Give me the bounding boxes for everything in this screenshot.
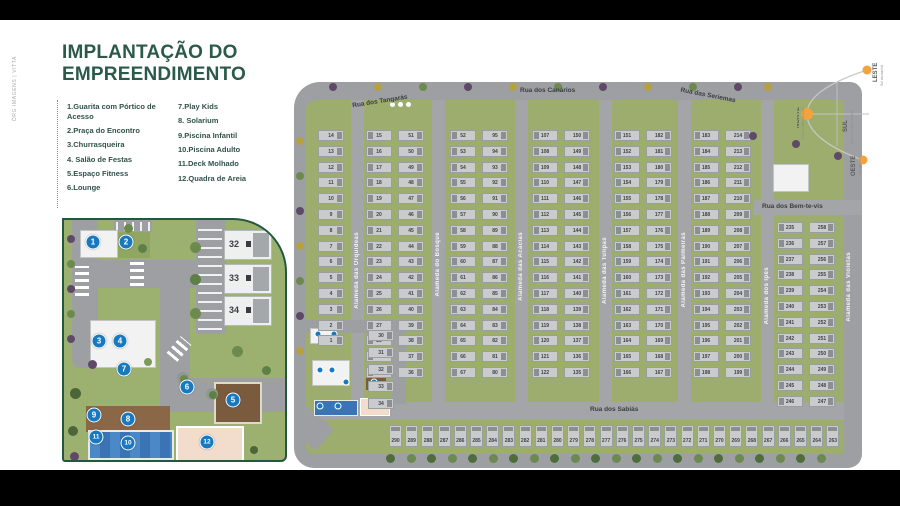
lot-number: 93 (483, 163, 507, 172)
lot-number: 200 (726, 352, 750, 361)
lot-number: 204 (726, 289, 750, 298)
lot-number: 270 (714, 426, 725, 446)
lot-number: 9 (319, 210, 343, 219)
lot-house: 181 (646, 146, 672, 157)
lot-number: 66 (451, 352, 475, 361)
lot-number: 13 (319, 147, 343, 156)
amenity-marker-12: 12 (200, 435, 215, 450)
lot-number: 12 (319, 163, 343, 172)
lot-number: 24 (367, 273, 391, 282)
lot-number: 80 (483, 368, 507, 377)
lot-house: 1 (318, 335, 344, 346)
lot-number: 252 (810, 318, 834, 327)
lot-house: 271 (697, 425, 710, 447)
lot-house: 197 (693, 351, 719, 362)
lot-house: 92 (482, 177, 508, 188)
house-roof (253, 299, 269, 323)
lot-house: 282 (519, 425, 532, 447)
lot-number: 113 (533, 226, 557, 235)
legend-item: 10.Piscina Adulto (178, 145, 278, 155)
lot-number: 60 (451, 257, 475, 266)
lot-number: 64 (451, 321, 475, 330)
lot-number: 25 (367, 289, 391, 298)
slide: ÓRG IMAGENS | VITTA IMPLANTAÇÃO DO EMPRE… (0, 0, 900, 506)
bush-icon (296, 207, 304, 215)
lot-number: 38 (399, 336, 423, 345)
sun-path-compass: LESTE Sol da manhã NORTE Maior incidênci… (797, 52, 897, 178)
bush-icon (296, 347, 304, 355)
lot-house: 3 (318, 304, 344, 315)
lot-house: 209 (725, 209, 751, 220)
lot-house: 12 (318, 162, 344, 173)
tree-icon (67, 335, 75, 343)
lot-number: 139 (565, 305, 589, 314)
lot-house: 155 (614, 193, 640, 204)
lot-house: 279 (567, 425, 580, 447)
lot-house: 146 (564, 193, 590, 204)
lot-number: 67 (451, 368, 475, 377)
legend-item: 2.Praça do Encontro (67, 126, 167, 136)
lot-number: 2 (319, 321, 343, 330)
lot-house: 122 (532, 367, 558, 378)
lot-house: 206 (725, 256, 751, 267)
lot-number: 191 (694, 257, 718, 266)
lot-number: 31 (369, 348, 393, 357)
lot-house: 172 (646, 288, 672, 299)
lot-number: 162 (615, 305, 639, 314)
detail-house-number: 34 (229, 297, 239, 325)
tree-icon (632, 454, 641, 463)
lot-number: 151 (615, 131, 639, 140)
lot-house: 254 (809, 285, 835, 296)
bush-icon (509, 83, 517, 91)
lot-house: 138 (564, 320, 590, 331)
legend-divider (57, 100, 58, 208)
lot-number: 237 (778, 255, 802, 264)
lot-number: 239 (778, 286, 802, 295)
lot-house: 167 (646, 367, 672, 378)
lot-number: 36 (399, 368, 423, 377)
legend-item: 4. Salão de Festas (67, 155, 167, 165)
lot-house: 115 (532, 256, 558, 267)
tree-icon (468, 454, 477, 463)
street-label-alameda: Alameda das Palmeiras (681, 232, 687, 307)
lot-house: 266 (778, 425, 791, 447)
lot-house: 32 (368, 364, 394, 375)
lot-number: 159 (615, 257, 639, 266)
lot-number: 287 (439, 426, 450, 446)
lot-number: 280 (552, 426, 563, 446)
lot-number: 141 (565, 273, 589, 282)
lot-house: 195 (693, 320, 719, 331)
lot-number: 282 (520, 426, 531, 446)
lot-house: 290 (389, 425, 402, 447)
lot-number: 148 (565, 163, 589, 172)
amenity-marker-4: 4 (113, 334, 128, 349)
lot-house: 191 (693, 256, 719, 267)
lot-house: 16 (366, 146, 392, 157)
lot-house: 63 (450, 304, 476, 315)
bush-icon (329, 83, 337, 91)
lot-house: 287 (438, 425, 451, 447)
lot-number: 267 (763, 426, 774, 446)
lot-number: 120 (533, 336, 557, 345)
lot-house: 90 (482, 209, 508, 220)
lot-house: 108 (532, 146, 558, 157)
lot-number: 244 (778, 365, 802, 374)
lot-number: 180 (647, 163, 671, 172)
lot-house: 14 (318, 130, 344, 141)
lot-number: 5 (319, 273, 343, 282)
lot-number: 149 (565, 147, 589, 156)
lot-number: 286 (455, 426, 466, 446)
lot-house: 94 (482, 146, 508, 157)
tree-icon (232, 346, 243, 357)
lot-number: 284 (487, 426, 498, 446)
lot-number: 214 (726, 131, 750, 140)
lot-house: 44 (398, 241, 424, 252)
page-title-line2: EMPREENDIMENTO (62, 64, 246, 86)
lot-number: 143 (565, 242, 589, 251)
bush-icon (464, 83, 472, 91)
lot-number: 44 (399, 242, 423, 251)
tree-icon (694, 454, 703, 463)
lot-number: 33 (369, 382, 393, 391)
lot-house: 250 (809, 348, 835, 359)
house-roof-vent (246, 241, 251, 247)
lot-house: 137 (564, 335, 590, 346)
house-roof (253, 267, 269, 291)
lot-number: 240 (778, 302, 802, 311)
lot-number: 114 (533, 242, 557, 251)
lot-house: 252 (809, 317, 835, 328)
lot-house: 164 (614, 335, 640, 346)
lot-number: 256 (810, 255, 834, 264)
lot-house: 241 (777, 317, 803, 328)
lot-house: 240 (777, 301, 803, 312)
lot-house: 119 (532, 320, 558, 331)
lot-house: 193 (693, 288, 719, 299)
lot-number: 250 (810, 349, 834, 358)
lot-number: 265 (795, 426, 806, 446)
page-title: IMPLANTAÇÃO DO EMPREENDIMENTO (62, 42, 246, 86)
bush-icon (296, 312, 304, 320)
lot-number: 165 (615, 352, 639, 361)
detail-house-number: 32 (229, 231, 239, 259)
lot-house: 175 (646, 241, 672, 252)
lot-number: 146 (565, 194, 589, 203)
lot-house: 243 (777, 348, 803, 359)
lot-house: 18 (366, 177, 392, 188)
lot-number: 32 (369, 365, 393, 374)
lot-number: 18 (367, 178, 391, 187)
lot-number: 266 (779, 426, 790, 446)
lot-house: 30 (368, 330, 394, 341)
lot-house: 289 (405, 425, 418, 447)
lot-number: 271 (698, 426, 709, 446)
house-roof-vent (246, 275, 251, 281)
tree-icon (386, 454, 395, 463)
lot-house: 145 (564, 209, 590, 220)
lot-number: 135 (565, 368, 589, 377)
lot-house: 84 (482, 304, 508, 315)
lot-house: 166 (614, 367, 640, 378)
lot-house: 192 (693, 272, 719, 283)
lot-number: 54 (451, 163, 475, 172)
tree-icon (124, 224, 133, 233)
lot-house: 47 (398, 193, 424, 204)
lot-number: 14 (319, 131, 343, 140)
lot-house: 202 (725, 320, 751, 331)
lot-number: 62 (451, 289, 475, 298)
lot-number: 186 (694, 178, 718, 187)
lot-house: 267 (762, 425, 775, 447)
lot-number: 193 (694, 289, 718, 298)
bush-icon (599, 83, 607, 91)
lot-number: 153 (615, 163, 639, 172)
lot-number: 174 (647, 257, 671, 266)
amenity-marker-2: 2 (119, 235, 134, 250)
lot-number: 142 (565, 257, 589, 266)
amenity-marker-11: 11 (89, 430, 104, 445)
lot-house: 139 (564, 304, 590, 315)
lot-number: 269 (730, 426, 741, 446)
lot-house: 26 (366, 304, 392, 315)
mini-marker-dot (317, 403, 324, 410)
lot-house: 13 (318, 146, 344, 157)
bush-icon (419, 83, 427, 91)
lot-number: 285 (471, 426, 482, 446)
lot-number: 43 (399, 257, 423, 266)
lot-number: 170 (647, 321, 671, 330)
lot-house: 112 (532, 209, 558, 220)
lot-house: 43 (398, 256, 424, 267)
lot-number: 45 (399, 226, 423, 235)
detail-house: 33 (224, 264, 272, 294)
lot-house: 24 (366, 272, 392, 283)
tree-icon (67, 235, 75, 243)
lot-house: 242 (777, 333, 803, 344)
lot-number: 118 (533, 305, 557, 314)
lot-number: 268 (746, 426, 757, 446)
lot-house: 284 (486, 425, 499, 447)
lot-house: 23 (366, 256, 392, 267)
lot-number: 168 (647, 352, 671, 361)
lot-house: 15 (366, 130, 392, 141)
compass-sub-sul: Menor incidência solar (850, 109, 854, 144)
lot-house: 199 (725, 367, 751, 378)
lot-house: 190 (693, 241, 719, 252)
lot-number: 50 (399, 147, 423, 156)
tree-icon (88, 360, 97, 369)
lot-house: 81 (482, 351, 508, 362)
lot-house: 196 (693, 335, 719, 346)
tree-icon (653, 454, 662, 463)
lot-number: 138 (565, 321, 589, 330)
lot-number: 289 (406, 426, 417, 446)
lot-number: 208 (726, 226, 750, 235)
lot-house: 162 (614, 304, 640, 315)
lot-house: 144 (564, 225, 590, 236)
lot-number: 87 (483, 257, 507, 266)
lot-number: 197 (694, 352, 718, 361)
lot-house: 248 (809, 380, 835, 391)
lot-number: 185 (694, 163, 718, 172)
lot-number: 243 (778, 349, 802, 358)
lot-number: 47 (399, 194, 423, 203)
lot-number: 152 (615, 147, 639, 156)
lot-number: 209 (726, 210, 750, 219)
lot-number: 65 (451, 336, 475, 345)
lot-number: 212 (726, 163, 750, 172)
lot-house: 235 (777, 222, 803, 233)
lot-house: 194 (693, 304, 719, 315)
lot-number: 254 (810, 286, 834, 295)
tree-icon (144, 358, 152, 366)
lot-number: 15 (367, 131, 391, 140)
lot-number: 157 (615, 226, 639, 235)
legend-item: 11.Deck Molhado (178, 159, 278, 169)
lot-house: 151 (614, 130, 640, 141)
lot-house: 83 (482, 320, 508, 331)
lot-number: 11 (319, 178, 343, 187)
lot-number: 207 (726, 242, 750, 251)
lot-number: 210 (726, 194, 750, 203)
lot-house: 268 (745, 425, 758, 447)
lot-house: 118 (532, 304, 558, 315)
lot-number: 258 (810, 223, 834, 232)
lot-house: 269 (729, 425, 742, 447)
lot-number: 23 (367, 257, 391, 266)
lot-house: 110 (532, 177, 558, 188)
lot-house: 171 (646, 304, 672, 315)
tree-icon (817, 454, 826, 463)
lot-house: 87 (482, 256, 508, 267)
amenity-marker-6: 6 (180, 380, 195, 395)
lot-house: 113 (532, 225, 558, 236)
lot-house: 64 (450, 320, 476, 331)
lot-number: 108 (533, 147, 557, 156)
lot-house: 152 (614, 146, 640, 157)
lot-number: 278 (584, 426, 595, 446)
lot-number: 188 (694, 210, 718, 219)
lot-number: 248 (810, 381, 834, 390)
lot-number: 84 (483, 305, 507, 314)
lot-number: 83 (483, 321, 507, 330)
lot-house: 185 (693, 162, 719, 173)
lot-number: 37 (399, 352, 423, 361)
tree-icon (190, 274, 201, 285)
lot-house: 22 (366, 241, 392, 252)
lot-house: 204 (725, 288, 751, 299)
lot-number: 41 (399, 289, 423, 298)
lot-number: 30 (369, 331, 393, 340)
lot-number: 3 (319, 305, 343, 314)
lot-house: 258 (809, 222, 835, 233)
lot-house: 246 (777, 396, 803, 407)
detail-house-number: 33 (229, 265, 239, 293)
legend-column-2: 7.Play Kids8. Solarium9.Piscina Infantil… (178, 102, 278, 188)
tree-icon (550, 454, 559, 463)
tree-icon (571, 454, 580, 463)
lot-number: 242 (778, 334, 802, 343)
lot-number: 194 (694, 305, 718, 314)
lot-number: 274 (649, 426, 660, 446)
lot-number: 90 (483, 210, 507, 219)
lot-number: 122 (533, 368, 557, 377)
lot-number: 206 (726, 257, 750, 266)
lot-house: 184 (693, 146, 719, 157)
tree-icon (509, 454, 518, 463)
lot-number: 192 (694, 273, 718, 282)
lot-house: 188 (693, 209, 719, 220)
lot-number: 273 (665, 426, 676, 446)
lot-house: 203 (725, 304, 751, 315)
lot-number: 167 (647, 368, 671, 377)
lot-number: 16 (367, 147, 391, 156)
lot-number: 203 (726, 305, 750, 314)
lot-house: 238 (777, 269, 803, 280)
compass-label-leste: LESTE (873, 63, 879, 82)
lot-number: 181 (647, 147, 671, 156)
lot-house: 8 (318, 225, 344, 236)
lot-house: 140 (564, 288, 590, 299)
lot-number: 277 (601, 426, 612, 446)
bottom-letterbox-bar (0, 470, 900, 506)
street-vertical (761, 100, 774, 420)
compass-sub-norte: Maior incidência solar (801, 106, 805, 140)
lot-number: 255 (810, 270, 834, 279)
lot-number: 253 (810, 302, 834, 311)
lot-number: 171 (647, 305, 671, 314)
lot-house: 7 (318, 241, 344, 252)
lot-number: 189 (694, 226, 718, 235)
lot-number: 154 (615, 178, 639, 187)
lot-number: 59 (451, 242, 475, 251)
lot-house: 173 (646, 272, 672, 283)
bush-icon (644, 83, 652, 91)
bush-icon (374, 83, 382, 91)
street-label-rua: Rua dos Bem-te-vis (762, 203, 823, 210)
lot-house: 55 (450, 177, 476, 188)
lot-house: 285 (470, 425, 483, 447)
lot-number: 175 (647, 242, 671, 251)
street-label-alameda: Alameda das Tulipas (602, 237, 608, 304)
lot-house: 82 (482, 335, 508, 346)
lot-number: 245 (778, 381, 802, 390)
lot-number: 26 (367, 305, 391, 314)
lot-number: 7 (319, 242, 343, 251)
amenities-detail-map: 323334 123456789101112 (62, 218, 287, 462)
lot-number: 235 (778, 223, 802, 232)
mini-marker-dot (317, 367, 324, 374)
tree-icon (407, 454, 416, 463)
bush-icon (764, 83, 772, 91)
amenity-marker-8: 8 (121, 412, 136, 427)
lot-number: 238 (778, 270, 802, 279)
tree-icon (591, 454, 600, 463)
lot-house: 237 (777, 254, 803, 265)
lot-house: 33 (368, 381, 394, 392)
lot-number: 275 (633, 426, 644, 446)
lot-number: 86 (483, 273, 507, 282)
lot-house: 66 (450, 351, 476, 362)
lot-house: 56 (450, 193, 476, 204)
lot-house: 157 (614, 225, 640, 236)
tree-icon (796, 454, 805, 463)
lot-number: 257 (810, 239, 834, 248)
lot-house: 169 (646, 335, 672, 346)
